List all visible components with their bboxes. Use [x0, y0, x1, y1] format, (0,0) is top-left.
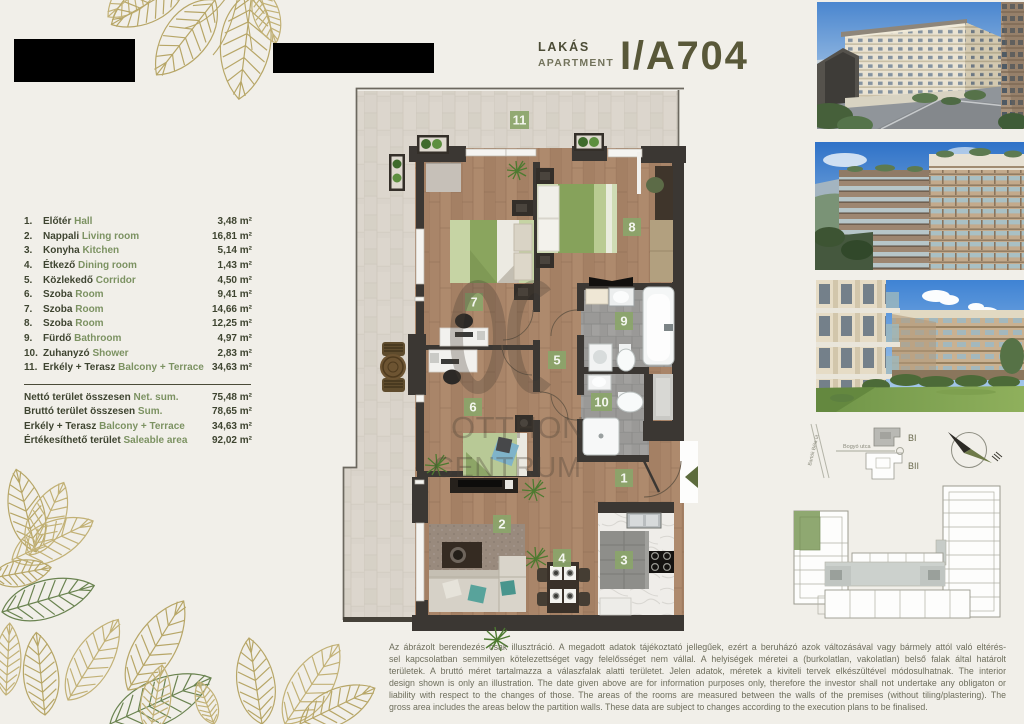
svg-text:10: 10 [594, 395, 608, 410]
svg-text:4: 4 [558, 551, 566, 566]
svg-text:3: 3 [620, 553, 627, 568]
svg-text:Bartók Béla út: Bartók Béla út [807, 434, 821, 467]
svg-text:BI: BI [908, 433, 917, 443]
svg-text:2: 2 [498, 517, 505, 532]
svg-text:9: 9 [620, 314, 627, 329]
svg-text:1: 1 [620, 471, 627, 486]
svg-text:BII: BII [908, 461, 919, 471]
svg-text:11: 11 [513, 113, 527, 128]
svg-text:Bogyó utca: Bogyó utca [843, 444, 871, 450]
svg-text:8: 8 [628, 220, 635, 235]
